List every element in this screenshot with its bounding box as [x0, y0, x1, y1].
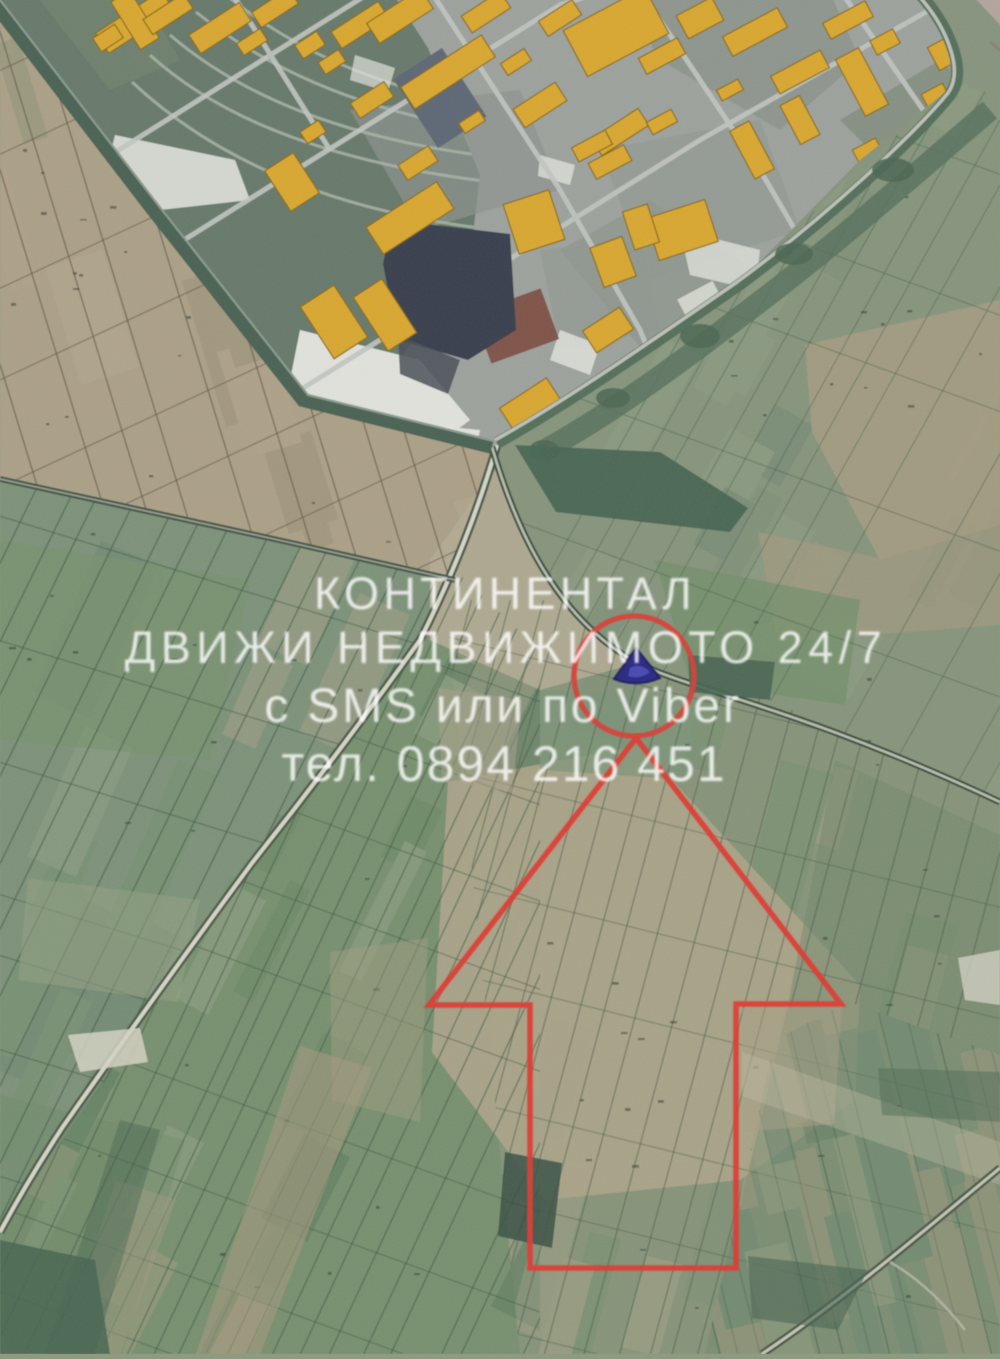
svg-text:КОНТИНЕНТАЛ: КОНТИНЕНТАЛ	[314, 568, 696, 619]
svg-text:тел. 0894 216 451: тел. 0894 216 451	[281, 736, 726, 792]
svg-text:с SMS или по Viber: с SMS или по Viber	[264, 680, 741, 733]
svg-text:ДВИЖИ НЕДВИЖИМОТО 24/7: ДВИЖИ НЕДВИЖИМОТО 24/7	[125, 622, 888, 673]
